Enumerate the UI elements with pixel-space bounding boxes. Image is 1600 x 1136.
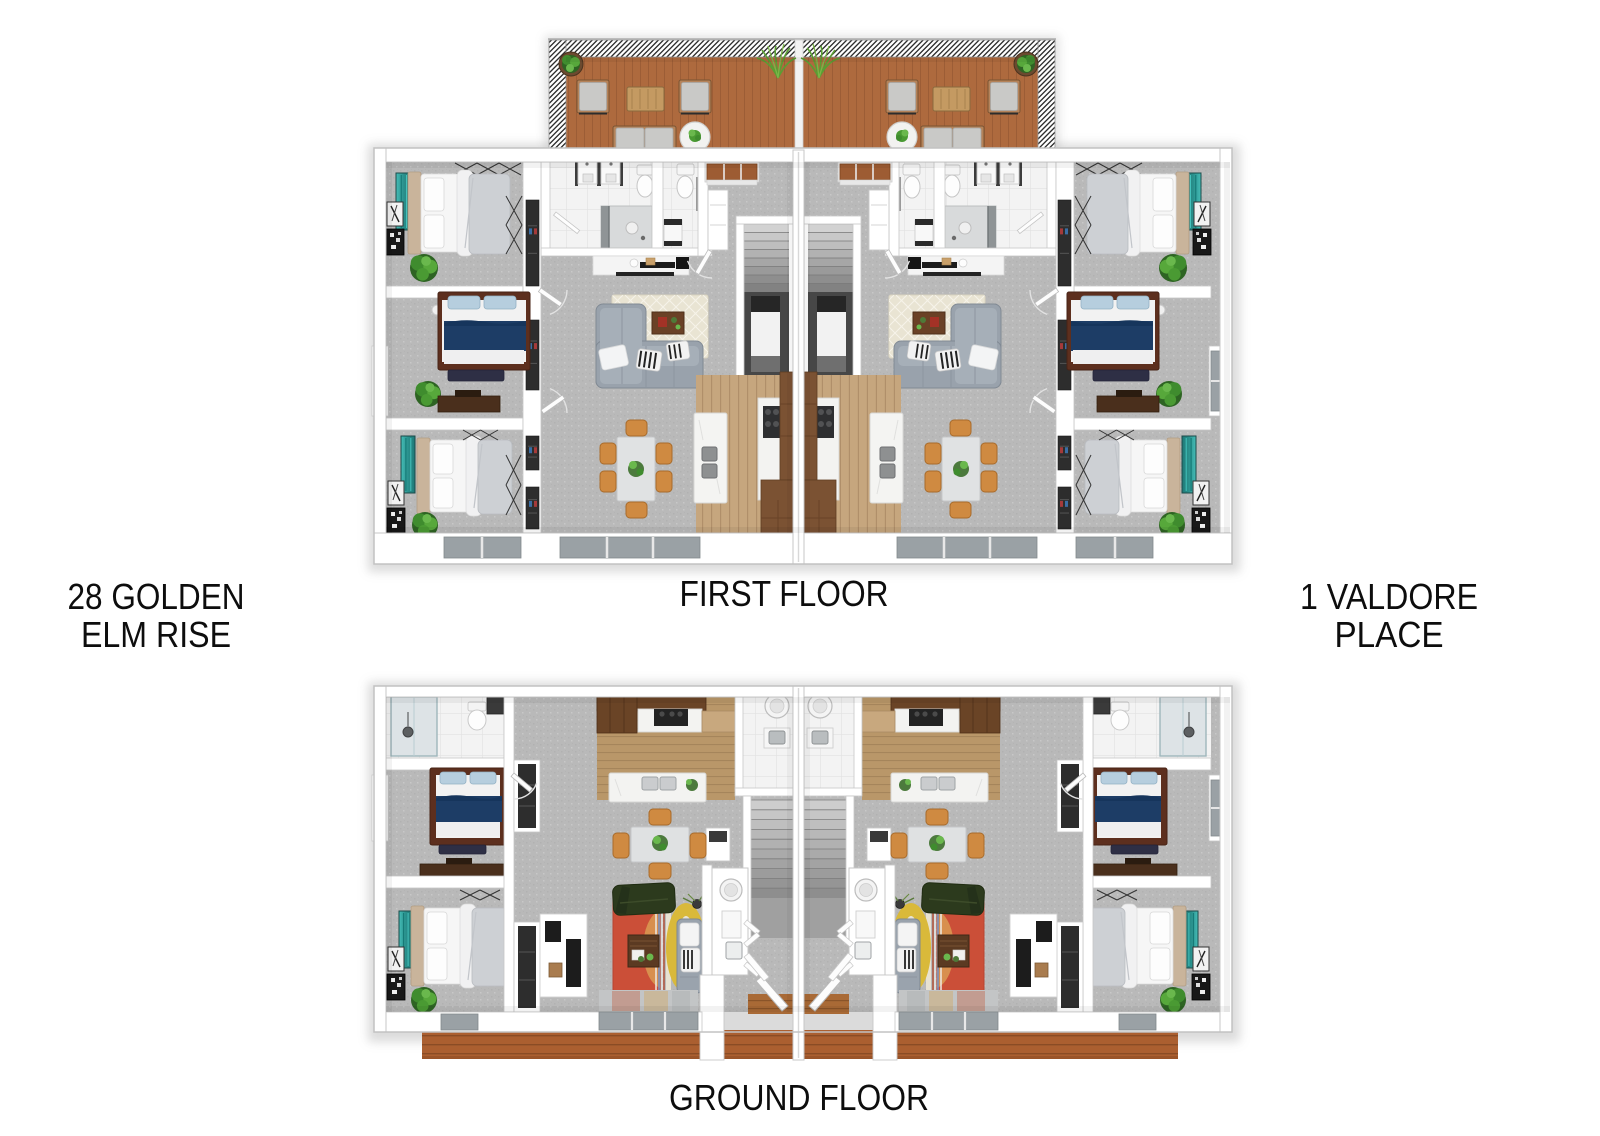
svg-text:PLACE: PLACE bbox=[1335, 614, 1444, 655]
svg-text:GROUND FLOOR: GROUND FLOOR bbox=[669, 1077, 929, 1118]
svg-text:ELM RISE: ELM RISE bbox=[81, 614, 231, 655]
svg-text:FIRST FLOOR: FIRST FLOOR bbox=[680, 573, 889, 614]
svg-text:1 VALDORE: 1 VALDORE bbox=[1300, 576, 1478, 617]
svg-text:28 GOLDEN: 28 GOLDEN bbox=[68, 576, 245, 617]
